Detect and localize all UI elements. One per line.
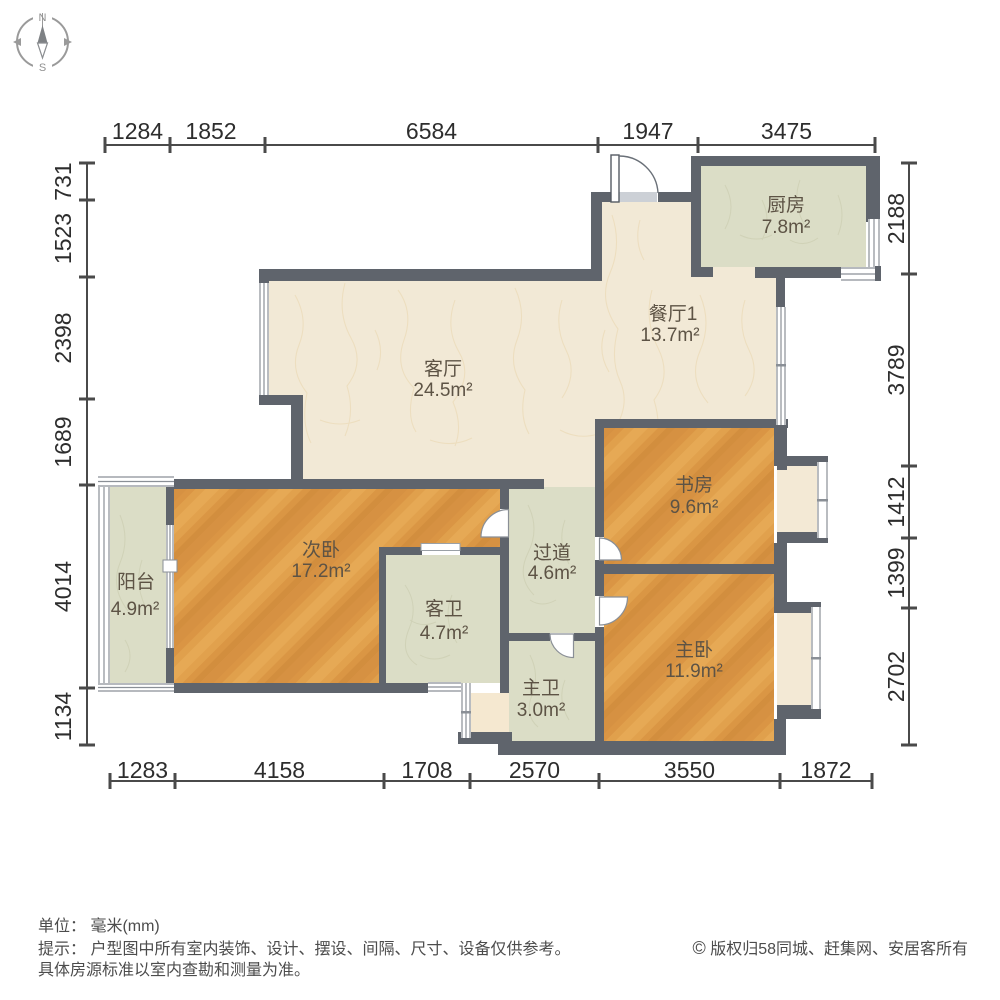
svg-text:2398: 2398 xyxy=(50,312,76,363)
svg-text:主卧: 主卧 xyxy=(675,639,713,661)
svg-text:1412: 1412 xyxy=(883,476,909,527)
svg-text:24.5m²: 24.5m² xyxy=(413,380,472,401)
svg-text:1689: 1689 xyxy=(50,416,76,467)
svg-text:S: S xyxy=(39,62,46,74)
svg-text:4014: 4014 xyxy=(50,561,76,612)
svg-text:1134: 1134 xyxy=(50,692,76,742)
svg-text:N: N xyxy=(39,12,47,24)
svg-text:4.9m²: 4.9m² xyxy=(111,599,160,620)
svg-text:2188: 2188 xyxy=(883,193,909,244)
svg-text:3550: 3550 xyxy=(664,757,715,783)
svg-text:13.7m²: 13.7m² xyxy=(640,325,699,346)
svg-text:1523: 1523 xyxy=(50,213,76,264)
svg-text:3789: 3789 xyxy=(883,344,909,395)
svg-text:17.2m²: 17.2m² xyxy=(291,561,350,582)
svg-text:客厅: 客厅 xyxy=(424,358,462,380)
svg-text:9.6m²: 9.6m² xyxy=(670,497,719,518)
svg-text:主卫: 主卫 xyxy=(522,677,560,699)
svg-text:4.6m²: 4.6m² xyxy=(528,563,577,584)
svg-text:1872: 1872 xyxy=(800,757,851,783)
svg-text:客卫: 客卫 xyxy=(425,598,463,620)
svg-text:厨房: 厨房 xyxy=(767,194,805,216)
svg-text:6584: 6584 xyxy=(406,118,457,144)
svg-text:餐厅1: 餐厅1 xyxy=(649,303,698,325)
svg-text:4158: 4158 xyxy=(254,757,305,783)
svg-text:7.8m²: 7.8m² xyxy=(762,217,811,238)
svg-text:4.7m²: 4.7m² xyxy=(420,623,469,644)
svg-text:1284: 1284 xyxy=(112,118,163,144)
svg-text:11.9m²: 11.9m² xyxy=(665,661,723,682)
svg-text:© 版权归58同城、赶集网、安居客所有: © 版权归58同城、赶集网、安居客所有 xyxy=(692,938,968,958)
svg-text:731: 731 xyxy=(50,162,76,200)
svg-text:书房: 书房 xyxy=(675,474,713,496)
svg-text:1399: 1399 xyxy=(883,547,909,598)
svg-text:3475: 3475 xyxy=(761,118,812,144)
svg-text:1947: 1947 xyxy=(622,118,673,144)
svg-text:单位： 毫米(mm): 单位： 毫米(mm) xyxy=(38,916,160,935)
svg-text:2702: 2702 xyxy=(883,651,909,702)
svg-text:次卧: 次卧 xyxy=(302,539,340,561)
svg-text:具体房源标准以室内查勘和测量为准。: 具体房源标准以室内查勘和测量为准。 xyxy=(38,961,310,979)
svg-text:提示： 户型图中所有室内装饰、设计、摆设、间隔、尺寸、设备仅: 提示： 户型图中所有室内装饰、设计、摆设、间隔、尺寸、设备仅供参考。 xyxy=(38,940,570,958)
svg-text:过道: 过道 xyxy=(533,542,571,564)
svg-text:阳台: 阳台 xyxy=(117,571,155,593)
svg-text:3.0m²: 3.0m² xyxy=(517,700,566,721)
svg-text:1708: 1708 xyxy=(401,757,452,783)
svg-text:1852: 1852 xyxy=(185,118,236,144)
svg-text:1283: 1283 xyxy=(117,757,168,783)
svg-text:2570: 2570 xyxy=(509,757,560,783)
